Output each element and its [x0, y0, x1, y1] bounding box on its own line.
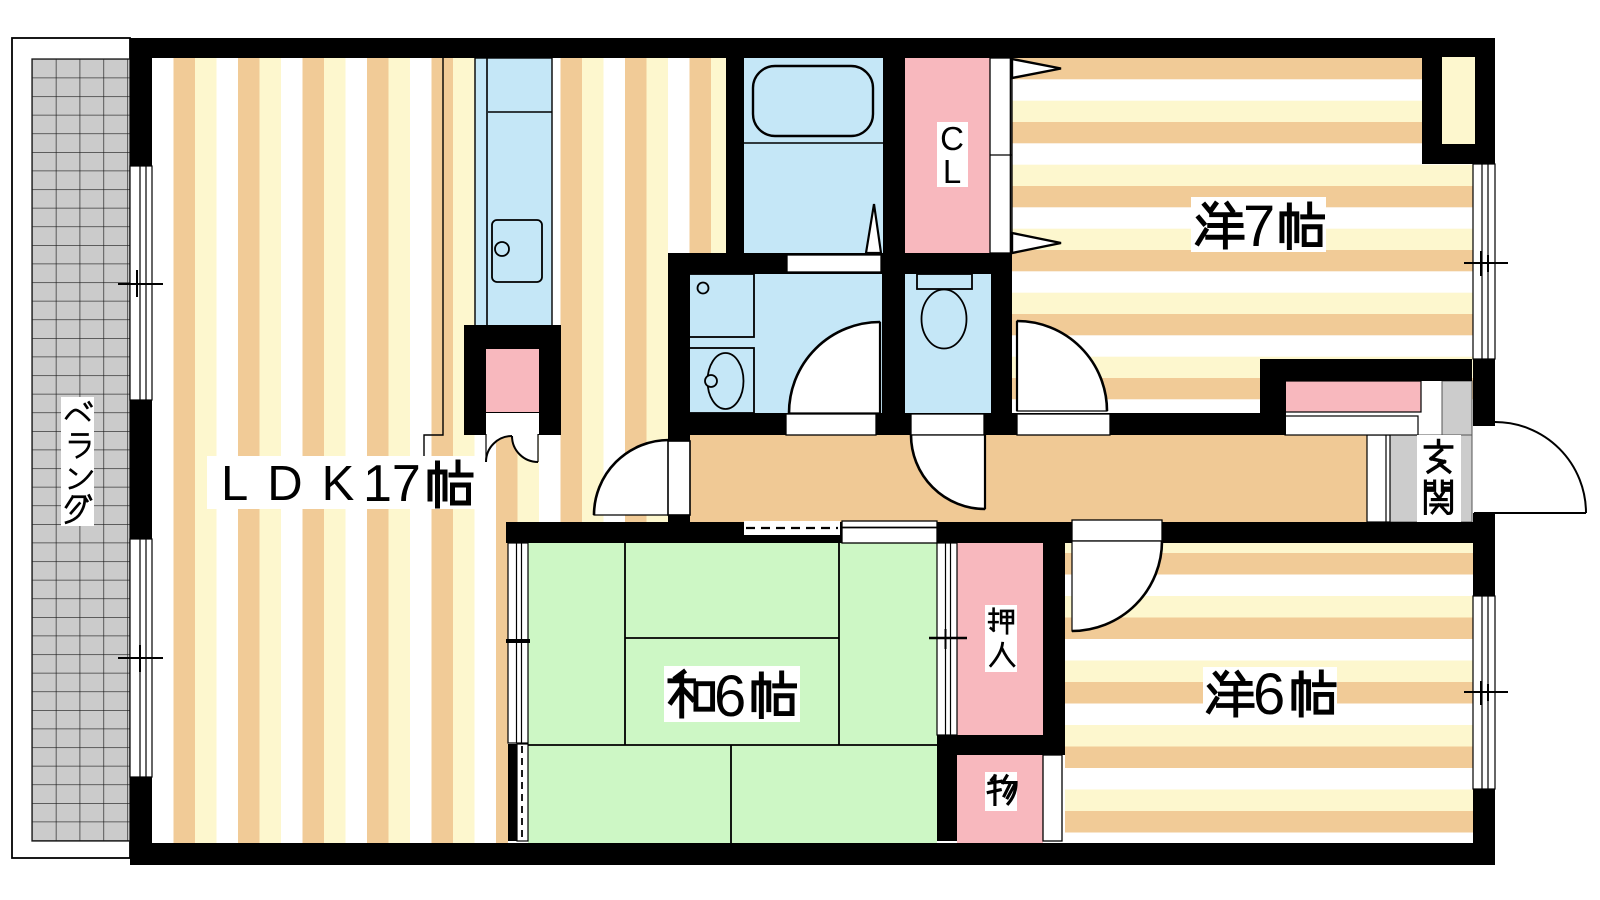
- svg-text:C: C: [940, 120, 964, 157]
- svg-text:7: 7: [1243, 194, 1275, 259]
- svg-text:LDK: LDK: [221, 457, 373, 511]
- svg-text:6: 6: [1253, 662, 1285, 727]
- svg-text:17: 17: [363, 455, 421, 513]
- svg-text:6: 6: [714, 664, 746, 729]
- svg-text:L: L: [943, 153, 961, 190]
